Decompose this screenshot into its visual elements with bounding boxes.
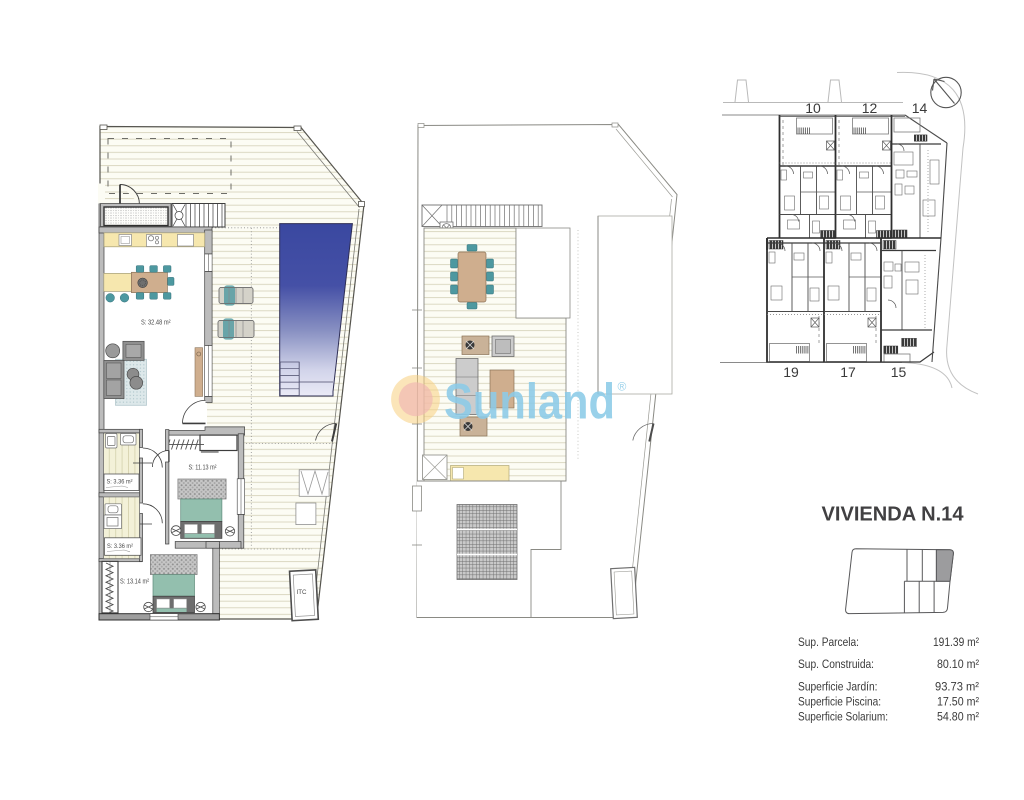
svg-text:S: 11.13 m²: S: 11.13 m²	[189, 465, 218, 472]
svg-text:Superficie Solarium:: Superficie Solarium:	[798, 710, 888, 724]
svg-text:ITC: ITC	[297, 589, 307, 596]
svg-text:54.80 m²: 54.80 m²	[937, 710, 979, 724]
svg-text:Superficie Piscina:: Superficie Piscina:	[798, 695, 881, 709]
svg-text:VIVIENDA N.14: VIVIENDA N.14	[822, 504, 965, 526]
svg-text:Superficie Jardín:: Superficie Jardín:	[798, 680, 878, 694]
svg-text:10: 10	[805, 100, 821, 116]
svg-text:12: 12	[862, 100, 878, 116]
svg-text:S: 13.14 m²: S: 13.14 m²	[120, 579, 150, 586]
svg-text:80.10 m²: 80.10 m²	[937, 657, 979, 671]
svg-text:15: 15	[891, 364, 907, 380]
svg-text:14: 14	[912, 100, 928, 116]
svg-text:S: 3.36 m²: S: 3.36 m²	[107, 543, 134, 550]
svg-text:191.39 m²: 191.39 m²	[933, 635, 979, 649]
svg-text:17.50 m²: 17.50 m²	[937, 695, 979, 709]
svg-text:Sup. Parcela:: Sup. Parcela:	[798, 635, 859, 649]
svg-text:Sunland: Sunland	[444, 374, 615, 430]
svg-text:®: ®	[618, 380, 627, 394]
svg-text:Sup. Construida:: Sup. Construida:	[798, 657, 874, 671]
svg-text:17: 17	[840, 364, 856, 380]
svg-text:S: 32.48 m²: S: 32.48 m²	[141, 320, 171, 327]
svg-text:93.73 m²: 93.73 m²	[935, 680, 979, 694]
svg-text:S: 3.36 m²: S: 3.36 m²	[107, 479, 134, 486]
svg-text:19: 19	[783, 364, 799, 380]
